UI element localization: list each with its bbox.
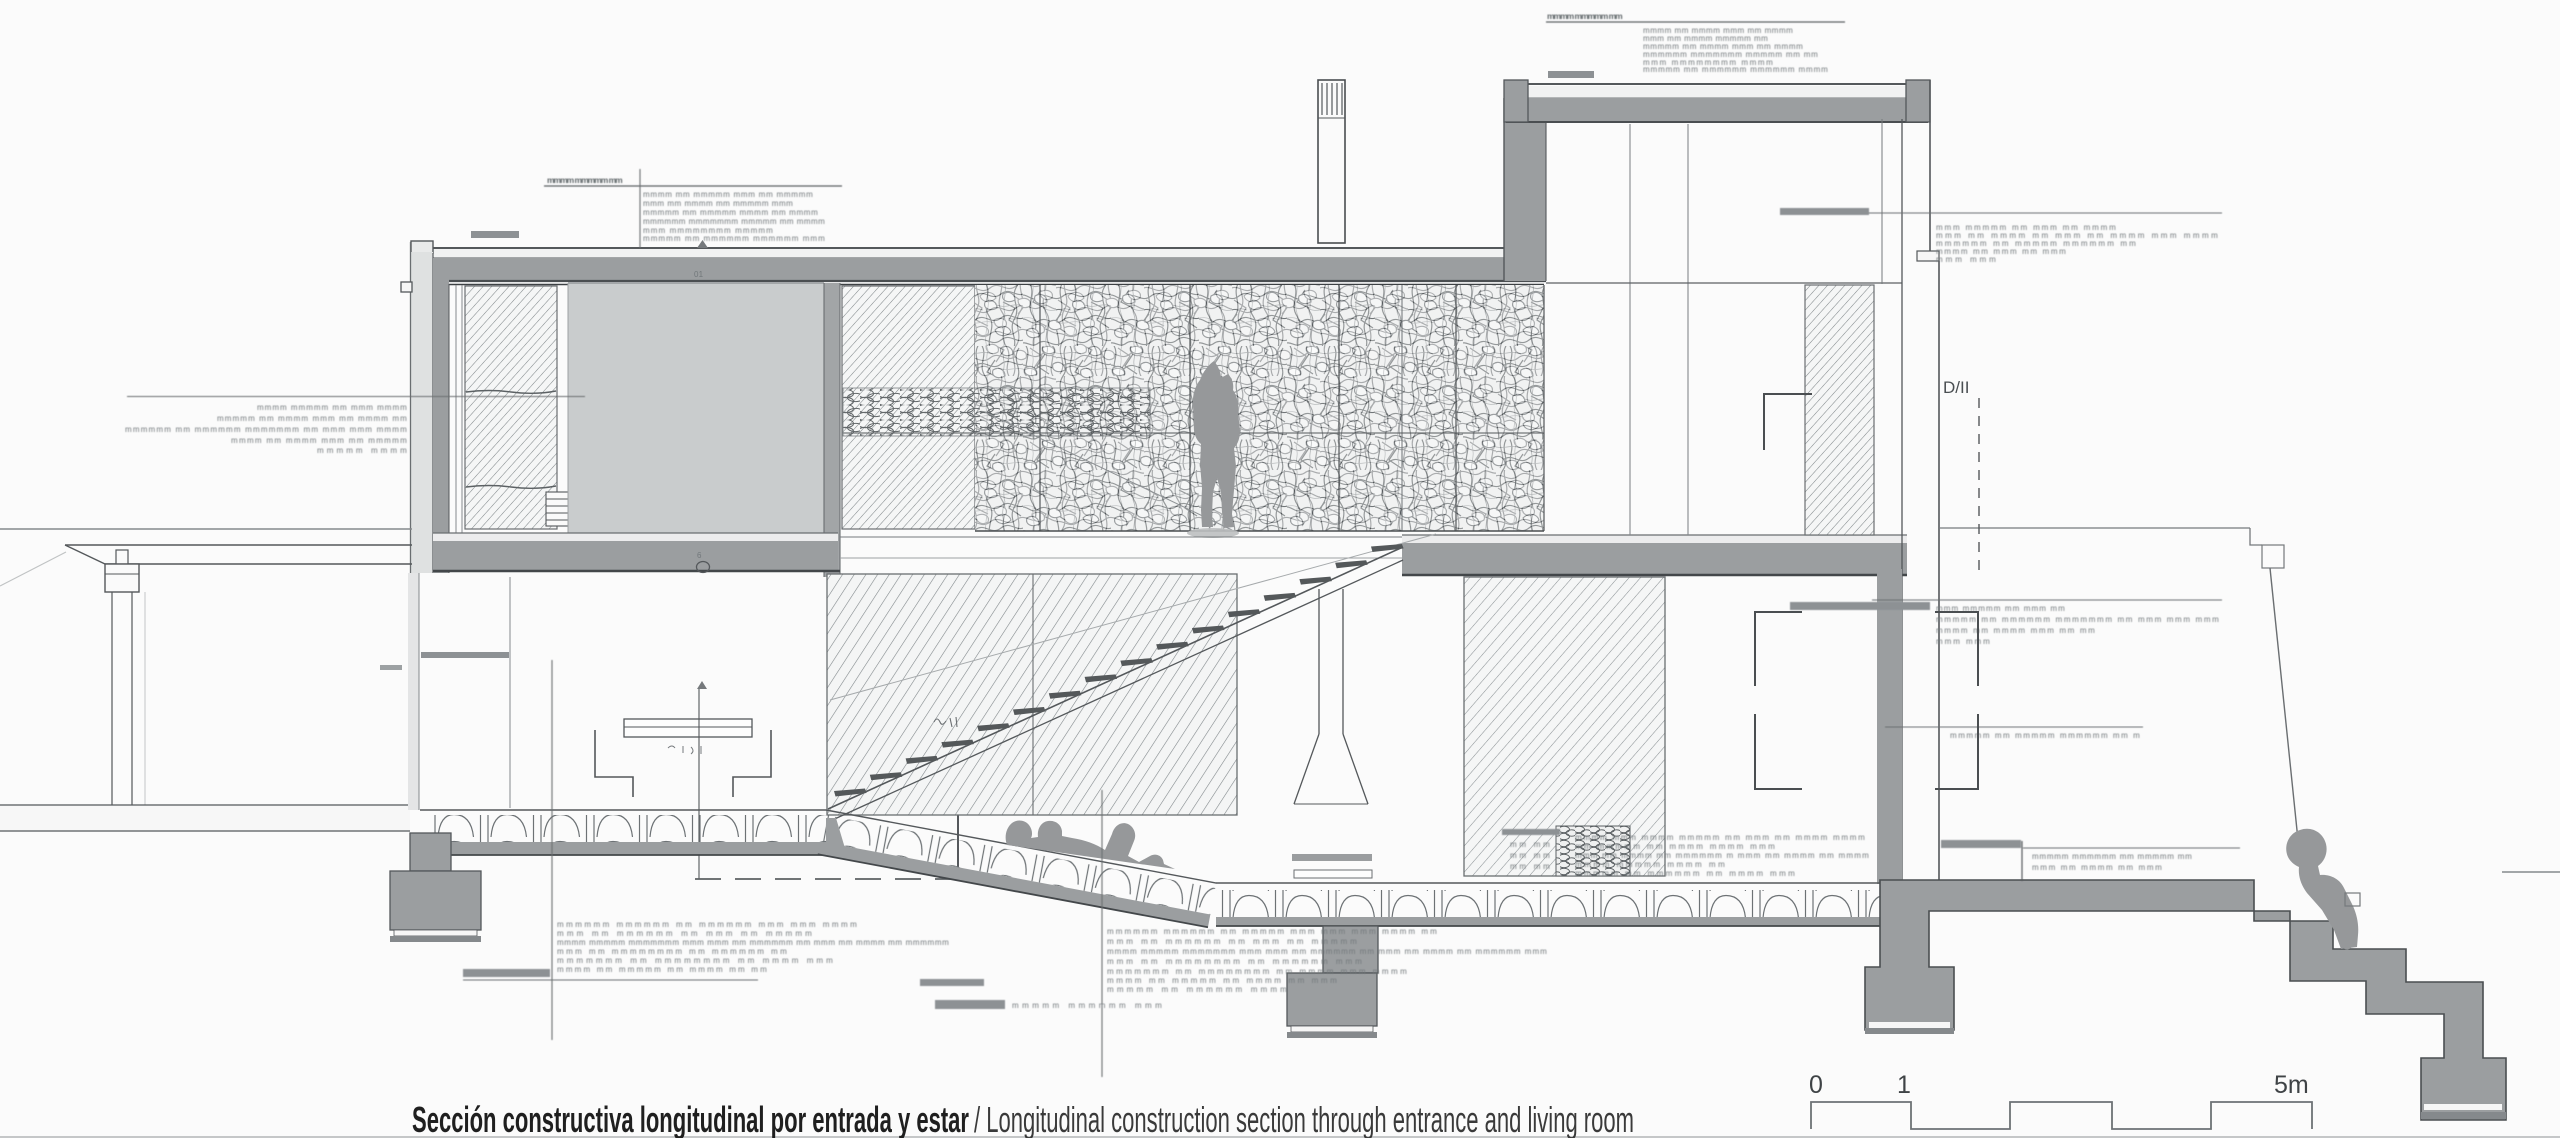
svg-text:1: 1 bbox=[1897, 1071, 1911, 1099]
svg-text:mmmmmmm mm mmmmmmmm mm mmmm mm: mmmmmmm mm mmmmmmmm mm mmmm mmm bbox=[557, 956, 833, 965]
svg-text:mmm mm mmmm mm mmmmmm m mmm mm: mmm mm mmmm mm mmmmmm m mmm mm mmmm mm m… bbox=[1575, 851, 1869, 860]
svg-text:mm mm: mm mm bbox=[1510, 851, 1550, 860]
svg-text:mmmm mmmmm mm mmm mmmm: mmmm mmmmm mm mmm mmmm bbox=[257, 403, 407, 412]
svg-text:mm mm: mm mm bbox=[1510, 862, 1550, 871]
svg-text:/ Longitudinal construction se: / Longitudinal construction section thro… bbox=[974, 1099, 1634, 1138]
svg-text:mmmmmm mmmmmm mm mmmmm mmm mmm: mmmmmm mmmmmm mm mmmmm mmm mmm mmm mmmm … bbox=[1107, 927, 1437, 936]
svg-text:mmmmm mm mmmmmm mmmmmm mmm: mmmmm mm mmmmmm mmmmmm mmm bbox=[643, 234, 825, 243]
svg-text:mmmm mmmmm mmmmmmm mmm mmm mm: mmmm mmmmm mmmmmmm mmm mmm mm mmmmmm mm … bbox=[557, 938, 949, 947]
svg-text:mmmm mmm mmmm mmmmm mm mmm mm: mmmm mmm mmmm mmmmm mm mmm mm mmmm mmmm bbox=[1575, 833, 1865, 842]
svg-text:mmmmmmm mm mmmmmmmm mm mmmm mm: mmmmmmm mm mmmmmmmm mm mmmm mmm mmmm bbox=[1107, 967, 1407, 976]
svg-text:mmmm mm mmmmm mm mmmm mm mm: mmmm mm mmmmm mm mmmm mm mm bbox=[557, 965, 767, 974]
svg-text:Sección constructiva longitudi: Sección constructiva longitudinal por en… bbox=[412, 1099, 969, 1138]
svg-text:01: 01 bbox=[694, 270, 704, 279]
svg-text:0: 0 bbox=[1809, 1071, 1823, 1099]
svg-text:mmmm mm mmmmm mmm mm mmmmm: mmmm mm mmmmm mmm mm mmmmm bbox=[643, 190, 813, 199]
svg-text:mmmmm mm mmmmmm mmmmmm mmmm: mmmmm mm mmmmmm mmmmmm mmmm bbox=[1643, 65, 1828, 74]
svg-text:mmmmm mmmmmm mm mmmmm mm: mmmmm mmmmmm mm mmmmm mm bbox=[2032, 852, 2192, 861]
svg-text:mmmmm mm mmmmm mmmm mm mmmm: mmmmm mm mmmmm mmmm mm mmmm bbox=[643, 208, 818, 217]
svg-text:mmmm mmmmm mm: mmmm mmmmm mm bbox=[547, 175, 623, 185]
svg-text:mmm mm mmmmmmmm mm mmmmmm mmm: mmm mm mmmmmmmm mm mmmmmm mmm bbox=[1107, 957, 1362, 966]
svg-text:mmmmm mmmm: mmmmm mmmm bbox=[317, 446, 407, 455]
svg-text:6: 6 bbox=[697, 551, 702, 560]
svg-text:mmmm mmmmm mm: mmmm mmmmm mm bbox=[1547, 11, 1623, 21]
svg-text:mmmmmm mm mmmmmm mmmmmmm mm mm: mmmmmm mm mmmmmm mmmmmmm mm mmm mmm mmmm bbox=[125, 425, 407, 434]
svg-text:mmmm mmmmm mmmmmmm mmm mmm mm: mmmm mmmmm mmmmmmm mmm mmm mm mmmmmm mm … bbox=[1107, 947, 1547, 956]
svg-text:mmm mm mmmm mm mmm: mmm mm mmmm mm mmm bbox=[2032, 863, 2162, 872]
svg-text:mmmmmm mmmmmmm mmmmm mm mmmm: mmmmmm mmmmmmm mmmmm mm mmmm bbox=[643, 217, 825, 226]
svg-text:D/II: D/II bbox=[1943, 378, 1969, 397]
svg-text:5m: 5m bbox=[2274, 1071, 2309, 1099]
svg-text:mmmmm mm mmmmmm mm mmmm mmm: mmmmm mm mmmmmm mm mmmm mmm bbox=[1575, 869, 1795, 878]
svg-text:mmmm mm mmmm mmm mm mmmmm: mmmm mm mmmm mmm mm mmmmm bbox=[231, 436, 407, 445]
svg-text:mm mm: mm mm bbox=[1510, 840, 1550, 849]
svg-text:mmm mm mmmmmmmm mm mmmmmm mm: mmm mm mmmmmmmm mm mmmmmm mm bbox=[557, 947, 787, 956]
svg-text:mmmmm mm mmmm mmm mm mmmm mm: mmmmm mm mmmm mmm mm mmmm mm bbox=[217, 414, 407, 423]
svg-text:mmm mm mmmm mm mmmmm mmm: mmm mm mmmm mm mmmmm mmm bbox=[643, 199, 793, 208]
